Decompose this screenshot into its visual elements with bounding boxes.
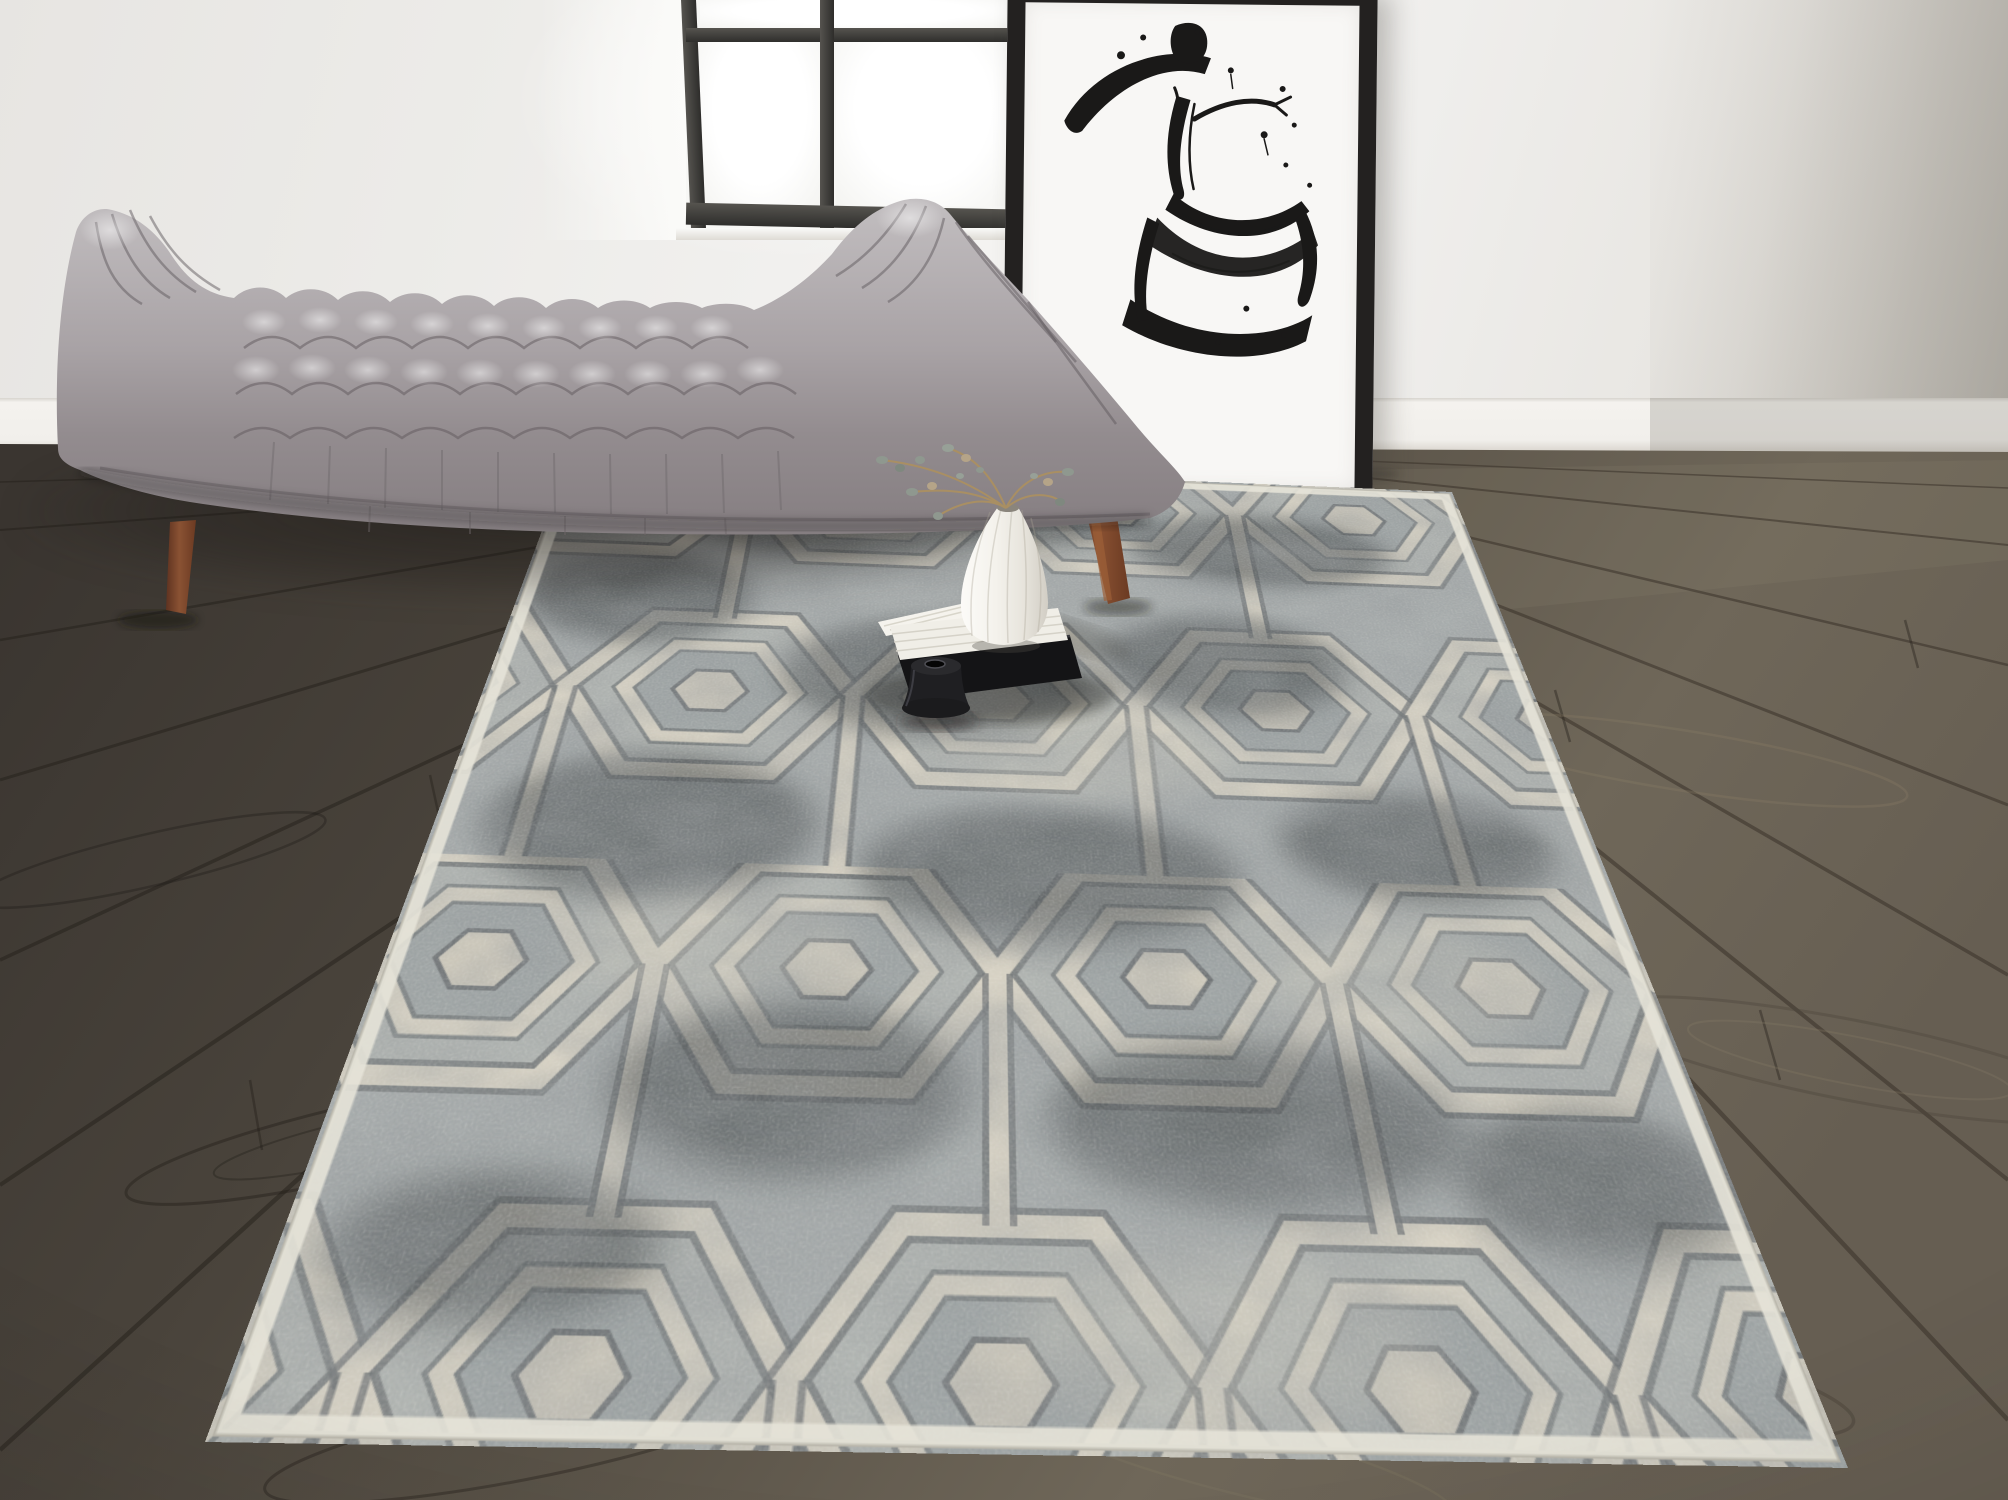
room-photo	[0, 0, 2008, 1500]
dried-leaves	[876, 444, 1074, 520]
hat-brim	[1064, 53, 1211, 135]
candle-holder-base	[902, 698, 970, 718]
dried-stems	[882, 448, 1068, 516]
hat-crown	[1170, 23, 1207, 64]
candle-holder-hole	[925, 660, 945, 668]
vase	[961, 507, 1048, 645]
bench-leg-back-left	[166, 520, 196, 614]
still-life	[820, 430, 1140, 750]
